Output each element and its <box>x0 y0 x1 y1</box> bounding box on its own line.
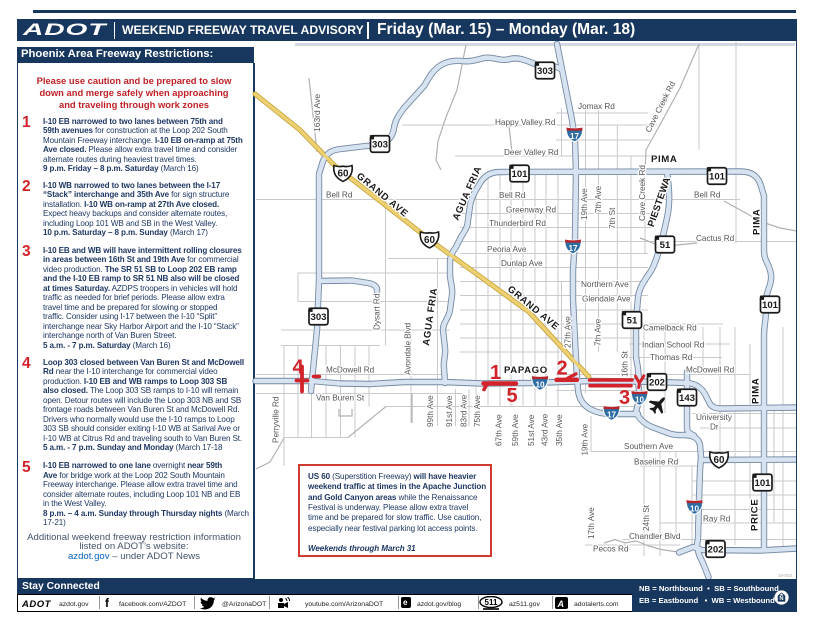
svg-text:101: 101 <box>762 300 779 311</box>
svg-text:51: 51 <box>660 240 671 251</box>
svg-text:60: 60 <box>424 235 435 246</box>
svg-text:Peoria Ave: Peoria Ave <box>487 245 527 254</box>
svg-text:Baseline Rd: Baseline Rd <box>634 458 679 467</box>
svg-text:59th Ave: 59th Ave <box>511 414 520 446</box>
svg-text:Perryville Rd: Perryville Rd <box>272 396 281 443</box>
svg-text:143: 143 <box>679 393 695 404</box>
svg-text:GRAND AVE: GRAND AVE <box>354 171 410 220</box>
svg-text:91st Ave: 91st Ave <box>445 395 454 427</box>
svg-text:McDowell Rd: McDowell Rd <box>686 366 735 375</box>
svg-text:Glendale Ave: Glendale Ave <box>582 295 631 304</box>
svg-text:Thunderbird Rd: Thunderbird Rd <box>489 219 546 228</box>
svg-text:4: 4 <box>293 357 305 379</box>
svg-text:60: 60 <box>338 169 349 180</box>
svg-text:35th Ave: 35th Ave <box>555 414 564 446</box>
svg-text:Dunlap Ave: Dunlap Ave <box>501 259 543 268</box>
svg-text:7th Ave: 7th Ave <box>594 185 603 213</box>
svg-text:202: 202 <box>649 377 665 388</box>
svg-text:303: 303 <box>372 139 388 150</box>
svg-text:51st Ave: 51st Ave <box>527 414 536 446</box>
svg-text:Cave Creek Rd: Cave Creek Rd <box>638 165 647 221</box>
svg-text:Jomax Rd: Jomax Rd <box>578 102 615 111</box>
svg-text:Greenway Rd: Greenway Rd <box>506 206 557 215</box>
svg-text:303: 303 <box>537 66 553 77</box>
svg-text:PIMA: PIMA <box>751 378 762 404</box>
svg-text:University: University <box>696 413 733 422</box>
svg-text:Cave Creek Rd: Cave Creek Rd <box>644 80 678 134</box>
svg-text:2: 2 <box>557 358 568 380</box>
svg-text:17th Ave: 17th Ave <box>587 507 596 539</box>
svg-text:Indian School Rd: Indian School Rd <box>642 341 705 350</box>
svg-text:Deer Valley Rd: Deer Valley Rd <box>504 148 559 157</box>
svg-text:16th St: 16th St <box>621 350 630 377</box>
svg-text:PAPAGO: PAPAGO <box>504 365 548 376</box>
svg-text:7th St: 7th St <box>608 207 617 229</box>
svg-text:Camelback Rd: Camelback Rd <box>643 324 697 333</box>
svg-text:1: 1 <box>490 362 501 384</box>
svg-text:Pecos Rd: Pecos Rd <box>593 545 629 554</box>
svg-text:101: 101 <box>754 478 771 489</box>
svg-text:511: 511 <box>485 598 498 607</box>
svg-text:N: N <box>779 596 783 602</box>
svg-text:PIMA: PIMA <box>651 154 677 165</box>
svg-text:163rd Ave: 163rd Ave <box>312 94 322 132</box>
svg-text:Cactus Rd: Cactus Rd <box>696 234 735 243</box>
svg-text:Ray Rd: Ray Rd <box>703 515 731 524</box>
svg-text:24th St: 24th St <box>642 504 651 531</box>
svg-text:19th Ave: 19th Ave <box>580 188 589 220</box>
svg-text:75th Ave: 75th Ave <box>473 395 482 427</box>
svg-text:5: 5 <box>507 385 518 407</box>
svg-text:83rd Ave: 83rd Ave <box>460 394 469 427</box>
svg-text:Bell Rd: Bell Rd <box>326 191 353 200</box>
svg-text:60: 60 <box>714 455 725 466</box>
svg-text:303: 303 <box>310 312 326 323</box>
svg-text:10: 10 <box>690 504 700 513</box>
svg-text:PIMA: PIMA <box>752 209 763 235</box>
svg-text:19-002: 19-002 <box>778 573 793 578</box>
svg-text:101: 101 <box>511 169 528 180</box>
svg-text:Dr: Dr <box>710 423 719 432</box>
svg-text:Thomas Rd: Thomas Rd <box>650 353 693 362</box>
svg-text:202: 202 <box>707 544 723 555</box>
svg-text:PRICE: PRICE <box>750 499 761 531</box>
svg-text:Van Buren St: Van Buren St <box>316 394 365 403</box>
svg-text:10: 10 <box>535 380 545 389</box>
svg-text:Avondale Blvd: Avondale Blvd <box>404 322 413 375</box>
svg-text:Chandler Blvd: Chandler Blvd <box>629 532 681 541</box>
svg-text:17: 17 <box>607 410 617 419</box>
svg-text:Bell Rd: Bell Rd <box>694 191 721 200</box>
svg-text:Northern Ave: Northern Ave <box>581 280 629 289</box>
svg-text:McDowell Rd: McDowell Rd <box>326 366 375 375</box>
svg-text:Dysart Rd: Dysart Rd <box>373 293 382 330</box>
svg-text:GRAND AVE: GRAND AVE <box>505 284 561 333</box>
svg-text:7th Ave: 7th Ave <box>594 318 603 346</box>
svg-text:Happy Valley Rd: Happy Valley Rd <box>495 118 556 127</box>
svg-text:27th Ave: 27th Ave <box>564 316 573 348</box>
svg-text:99th Ave: 99th Ave <box>426 395 435 427</box>
svg-text:10: 10 <box>635 395 645 404</box>
svg-text:Southern Ave: Southern Ave <box>624 442 673 451</box>
svg-text:3: 3 <box>619 387 630 409</box>
svg-text:19th Ave: 19th Ave <box>581 423 590 455</box>
svg-text:51: 51 <box>627 315 638 326</box>
svg-text:17: 17 <box>568 244 578 253</box>
svg-text:17: 17 <box>570 132 580 141</box>
svg-text:67th Ave: 67th Ave <box>495 414 504 446</box>
svg-text:101: 101 <box>709 171 726 182</box>
svg-text:Bell Rd: Bell Rd <box>499 191 526 200</box>
svg-text:43rd Ave: 43rd Ave <box>541 413 550 446</box>
